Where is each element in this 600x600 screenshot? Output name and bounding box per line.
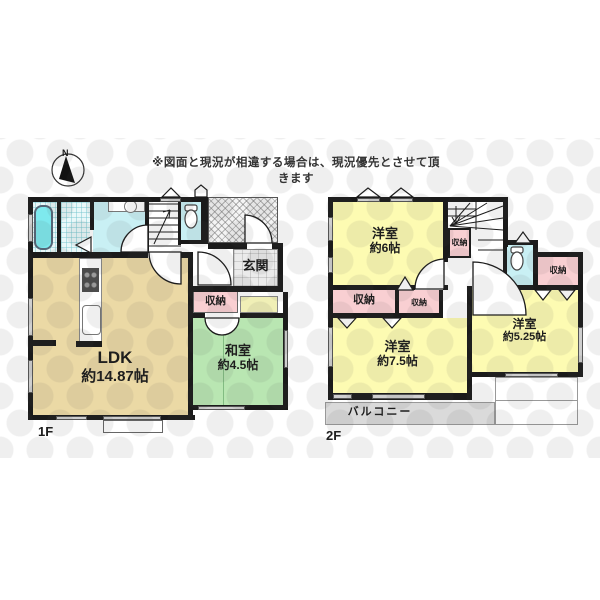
room-name: LDK [55,348,175,368]
door-stop-icon [397,277,413,290]
floor1-label: 1F [38,424,53,439]
ldk-label: LDK 約14.87帖 [55,348,175,386]
room-name: 洋室 [477,317,572,331]
vent-tent-icon [515,232,531,243]
genkan-label: 玄関 [233,258,278,273]
window-tent-icon [390,188,413,197]
bedroom-75-label: 洋室 約7.5帖 [340,339,455,368]
compass-icon: N [52,148,84,186]
window-tent-icon [357,188,380,197]
room-size: 約14.87帖 [55,368,175,386]
storage-2f-left-label: 収納 [333,294,395,307]
toilet-icon-1f [185,205,197,228]
door-arcs-1f [121,215,272,335]
washitsu-label: 和室 約4.5帖 [198,343,278,372]
room-size: 約6帖 [340,241,430,255]
storage-2f-stair-label: 収納 [446,238,473,247]
room-name: 洋室 [340,339,455,354]
door-arc [149,252,181,284]
closet-door-icon [338,318,356,328]
bedroom-6-label: 洋室 約6帖 [340,226,430,255]
disclaimer-text: ※図面と現況が相違する場合は、現況優先とさせて頂きます [150,154,442,186]
room-name: 洋室 [340,226,430,241]
toilet-icon-2f [511,247,523,270]
vent-tent-icon [162,188,180,197]
door-arc [198,252,231,285]
entrance-door-arc [245,215,272,243]
floorplan-sheet: ※図面と現況が相違する場合は、現況優先とさせて頂きます [0,0,600,600]
vent-tent-icon [195,185,207,197]
stairs-1f-icon [148,204,181,246]
plan-linework: N [0,0,600,600]
storage-2f-mid-label: 収納 [399,298,439,307]
room-size: 約7.5帖 [340,354,455,368]
balcony-label: バルコニー [330,406,430,419]
compass-n-label: N [62,148,69,158]
folding-door-icon [76,237,91,253]
room-size: 約4.5帖 [198,358,278,372]
room-name: 和室 [198,343,278,358]
room-size: 約5.25帖 [477,331,572,344]
storage-2f-right-label: 収納 [538,265,578,275]
bedroom-525-label: 洋室 約5.25帖 [477,317,572,344]
door-arc [415,259,444,289]
closet-door-icon [383,318,401,328]
storage-1f-label: 収納 [193,295,238,307]
closet-door-icon [559,290,575,300]
closet-door-icon [535,290,551,300]
floor2-label: 2F [326,428,341,443]
door-arc [121,225,148,252]
washitsu-door-arch [205,318,239,335]
